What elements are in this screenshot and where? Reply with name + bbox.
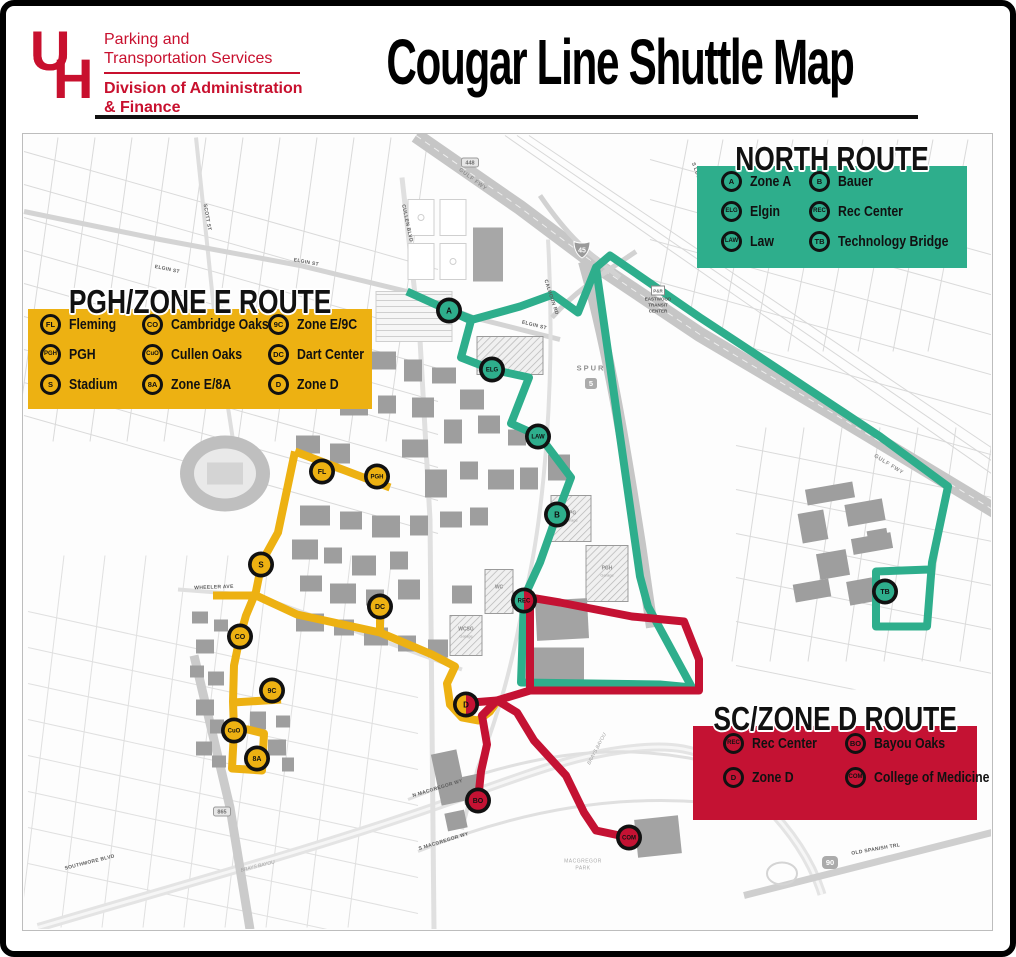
stop-label: Cullen Oaks xyxy=(171,346,242,363)
stop-badge-8A[interactable]: 8A xyxy=(244,746,270,772)
legend-pgh-box: FLFlemingPGHPGHSStadiumCOCambridge OaksC… xyxy=(28,309,372,409)
shield-448: 448 xyxy=(462,158,479,167)
dept-divider xyxy=(104,72,300,74)
svg-text:BO: BO xyxy=(473,798,484,805)
map-label: WCSG xyxy=(458,627,474,633)
legend-north-route: NORTH ROUTE AZone AELGElginLAWLawBBauerR… xyxy=(697,140,967,268)
legend-sc-box: RECRec CenterDZone DBOBayou OaksCOMColle… xyxy=(693,726,977,820)
svg-text:CuO: CuO xyxy=(228,729,241,735)
uh-logo: U H U xyxy=(31,24,99,102)
stop-badge-COM[interactable]: COM xyxy=(616,825,642,851)
stop-badge-B[interactable]: B xyxy=(544,502,570,528)
stop-badge-icon: TB xyxy=(809,231,830,252)
svg-text:D: D xyxy=(463,700,469,709)
tdecu-stadium xyxy=(180,436,270,512)
stop-badge-icon: LAW xyxy=(721,231,742,252)
stop-label: Law xyxy=(750,233,774,250)
stop-badge-icon: COM xyxy=(845,767,866,788)
svg-text:45: 45 xyxy=(578,248,586,255)
shield-P&R: P&R xyxy=(652,286,665,295)
stop-label: PGH xyxy=(69,346,96,363)
map-label: CENTER xyxy=(649,309,668,314)
legend-item-ELG: ELGElgin xyxy=(721,201,809,222)
division-line1: Division of Administration xyxy=(104,79,334,98)
legend-item-D: DZone D xyxy=(268,374,374,395)
map-label: WHEELER AVE xyxy=(194,584,234,591)
legend-sc-title: SC/ZONE D ROUTE xyxy=(713,700,956,738)
stop-label: Zone D xyxy=(297,376,339,393)
department-block: Parking and Transportation Services Divi… xyxy=(104,30,334,117)
page-title: Cougar Line Shuttle Map xyxy=(386,25,853,99)
shield-90: 90 xyxy=(822,856,838,869)
stop-badge-TB[interactable]: TB xyxy=(872,579,898,605)
stop-badge-icon: ELG xyxy=(721,201,742,222)
svg-text:9C: 9C xyxy=(268,688,277,695)
stop-badge-CO[interactable]: CO xyxy=(227,624,253,650)
map-label: SPUR xyxy=(577,364,606,373)
stop-badge-icon: 8A xyxy=(142,374,163,395)
map-label: S MACGREGOR WY xyxy=(418,831,470,852)
svg-text:S: S xyxy=(258,560,264,569)
stop-label: Zone E/8A xyxy=(171,376,231,393)
svg-text:LAW: LAW xyxy=(531,435,545,441)
svg-text:REC: REC xyxy=(518,599,531,605)
svg-text:A: A xyxy=(446,306,452,315)
map-label: EASTWOOD xyxy=(645,297,672,302)
stop-badge-DC[interactable]: DC xyxy=(367,594,393,620)
stop-label: Elgin xyxy=(750,203,780,220)
stop-badge-icon: FL xyxy=(40,314,61,335)
stop-label: Rec Center xyxy=(838,203,903,220)
stop-badge-icon: CuO xyxy=(142,344,163,365)
stop-label: Dart Center xyxy=(297,346,364,363)
svg-text:FL: FL xyxy=(318,469,327,476)
legend-item-DC: DCDart Center xyxy=(268,344,374,365)
cloverleaf xyxy=(767,863,797,885)
stop-label: Zone D xyxy=(752,769,794,786)
north-rec-fields xyxy=(408,200,466,280)
legend-pgh-zone-e-route: PGH/ZONE E ROUTE FLFlemingPGHPGHSStadium… xyxy=(28,283,372,409)
map-label: PARK xyxy=(575,866,590,872)
svg-text:COM: COM xyxy=(622,836,636,842)
stop-badge-icon: D xyxy=(268,374,289,395)
legend-item-8A: 8AZone E/8A xyxy=(142,374,268,395)
legend-north-title: NORTH ROUTE xyxy=(735,140,929,178)
svg-text:B: B xyxy=(554,510,560,519)
shield-5: 5 xyxy=(585,378,597,389)
svg-text:TB: TB xyxy=(880,589,889,596)
stop-badge-PGH[interactable]: PGH xyxy=(364,464,390,490)
stop-badge-icon: PGH xyxy=(40,344,61,365)
page-title-wrap: Cougar Line Shuttle Map xyxy=(330,18,910,106)
svg-text:P&R: P&R xyxy=(653,288,663,293)
stop-badge-CuO[interactable]: CuO xyxy=(221,718,247,744)
svg-text:U: U xyxy=(31,24,70,82)
legend-item-COM: COMCollege of Medicine xyxy=(845,767,997,788)
wc-garage xyxy=(485,570,513,614)
legend-item-CuO: CuOCullen Oaks xyxy=(142,344,268,365)
stop-label: Stadium xyxy=(69,376,118,393)
header-rule xyxy=(95,115,918,119)
stop-badge-REC[interactable]: REC xyxy=(511,588,537,614)
stop-badge-FL[interactable]: FL xyxy=(309,459,335,485)
legend-item-REC: RECRec Center xyxy=(809,201,977,222)
legend-item-TB: TBTechnology Bridge xyxy=(809,231,977,252)
map-label: SOUTHMORE BLVD xyxy=(64,853,115,871)
stop-badge-icon: DC xyxy=(268,344,289,365)
legend-item-S: SStadium xyxy=(40,374,142,395)
stop-label: College of Medicine xyxy=(874,769,990,786)
stop-badge-icon: D xyxy=(723,767,744,788)
legend-item-LAW: LAWLaw xyxy=(721,231,809,252)
stop-label: Technology Bridge xyxy=(838,233,948,250)
legend-north-box: AZone AELGElginLAWLawBBauerRECRec Center… xyxy=(697,166,967,268)
map-label: WC xyxy=(495,585,504,591)
svg-text:PGH: PGH xyxy=(370,475,383,481)
map-label: TRANSIT xyxy=(648,303,668,308)
dept-line1: Parking and xyxy=(104,30,334,49)
stop-badge-A[interactable]: A xyxy=(436,298,462,324)
stop-badge-BO[interactable]: BO xyxy=(465,788,491,814)
svg-text:8A: 8A xyxy=(253,756,262,763)
stop-badge-9C[interactable]: 9C xyxy=(259,678,285,704)
legend-item-PGH: PGHPGH xyxy=(40,344,142,365)
legend-sc-zone-d-route: SC/ZONE D ROUTE RECRec CenterDZone DBOBa… xyxy=(693,700,977,820)
svg-text:5: 5 xyxy=(589,379,593,388)
mlk-blvd xyxy=(194,656,250,930)
map-label: PGH xyxy=(602,566,613,572)
svg-text:DC: DC xyxy=(375,604,385,611)
stop-badge-S[interactable]: S xyxy=(248,552,274,578)
stop-badge-icon: REC xyxy=(809,201,830,222)
svg-text:ELG: ELG xyxy=(486,368,499,374)
stop-badge-LAW[interactable]: LAW xyxy=(525,424,551,450)
shield-865: 865 xyxy=(214,807,231,816)
svg-text:CO: CO xyxy=(235,634,246,641)
stop-badge-ELG[interactable]: ELG xyxy=(479,357,505,383)
shuttle-map-page: U H U Parking and Transportation Service… xyxy=(0,0,1016,957)
map-label: Garage xyxy=(600,573,614,578)
dept-line2: Transportation Services xyxy=(104,49,334,68)
stop-badge-icon: S xyxy=(40,374,61,395)
svg-text:90: 90 xyxy=(826,858,834,867)
stop-badge-D[interactable]: D xyxy=(453,692,479,718)
legend-item-D: DZone D xyxy=(723,767,845,788)
map-label: Garage xyxy=(459,634,473,639)
svg-text:865: 865 xyxy=(217,810,226,816)
svg-text:448: 448 xyxy=(465,161,474,167)
map-label: ELGIN ST xyxy=(154,264,180,275)
legend-pgh-title: PGH/ZONE E ROUTE xyxy=(69,283,332,321)
map-label: MACGREGOR xyxy=(564,859,602,865)
